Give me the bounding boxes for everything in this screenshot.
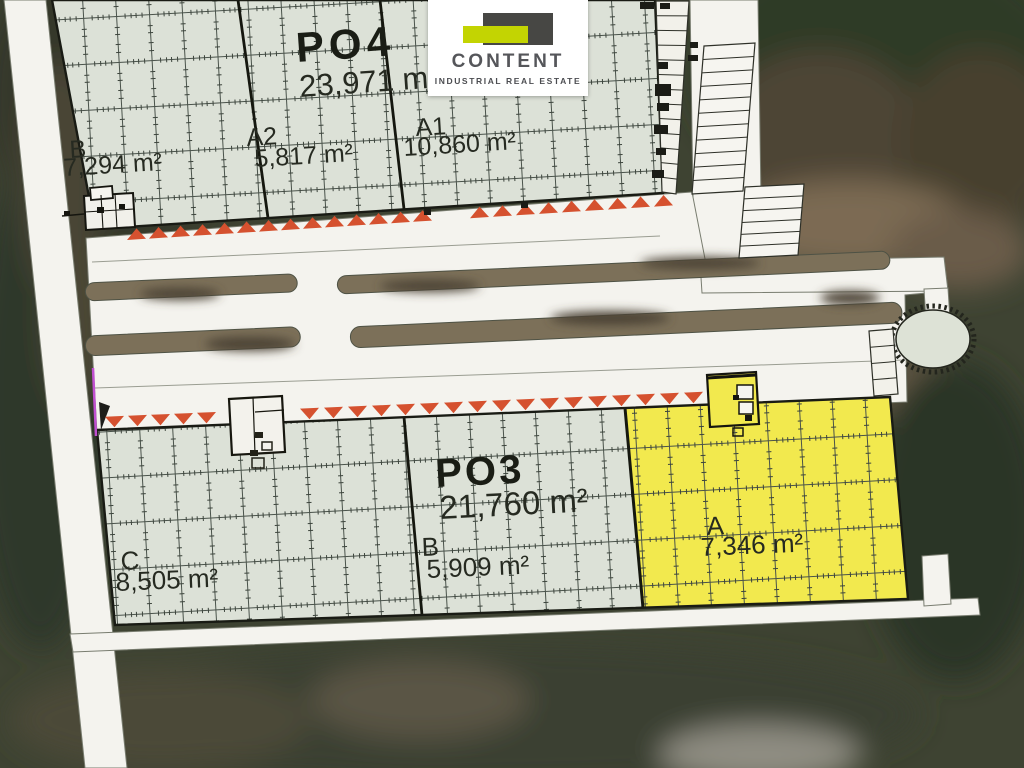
parking-west-of-pond xyxy=(869,329,898,396)
site-plan-svg: PO4 23,971 m² B 7,294 m² A2 5,817 m² A1 … xyxy=(0,0,1024,768)
content-logo-icon xyxy=(463,13,553,45)
parking-group-east xyxy=(739,184,804,258)
parking-stall-line xyxy=(658,60,685,61)
logo-tagline: INDUSTRIAL REAL ESTATE xyxy=(435,76,582,86)
po3-area: 21,760 m² xyxy=(438,481,588,526)
po3-section-a-area: 7,346 m² xyxy=(700,528,804,562)
pond-surface xyxy=(896,310,970,368)
site-plan: PO4 23,971 m² B 7,294 m² A2 5,817 m² A1 … xyxy=(0,0,1024,768)
logo-mark-accent-rect xyxy=(463,26,528,43)
road-south-stub xyxy=(922,554,951,606)
content-logo-card: CONTENT INDUSTRIAL REAL ESTATE xyxy=(428,0,588,96)
po3-section-c-area: 8,505 m² xyxy=(115,563,219,597)
po3-section-b-area: 5,909 m² xyxy=(426,550,530,584)
logo-company-name: CONTENT xyxy=(452,51,565,73)
